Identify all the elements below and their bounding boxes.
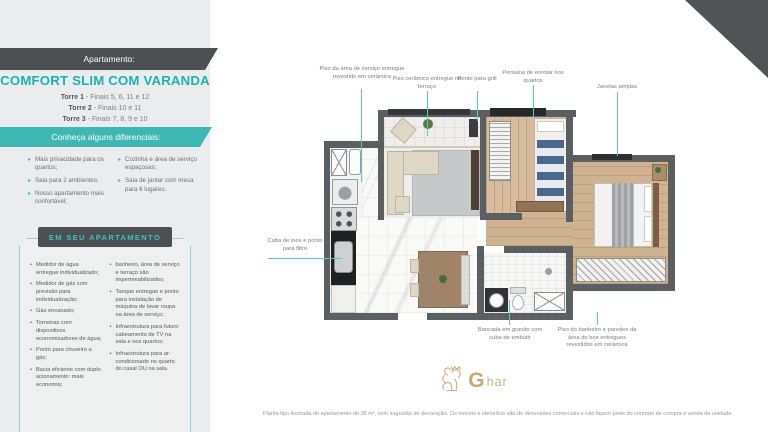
pillow [537,121,564,132]
inox-sink [334,241,353,273]
callout-line [617,92,618,156]
brand-logo: G har [418,362,528,398]
kitchen-counter [331,285,356,313]
callout-blinds: Persiana de enrolar nos quartos [499,70,567,85]
list-item: Sala de jantar com mesa para 6 lugares. [118,177,200,194]
tower-line: Torre 2 - Finais 10 e 11 [0,104,210,115]
toilet [512,295,524,310]
laundry-tank [349,149,361,175]
desk [516,201,564,212]
bed-blanket [537,140,564,204]
wardrobe [576,258,666,282]
callout-line [597,312,598,325]
blinds-window [490,108,546,116]
tv-panel [471,150,479,210]
callout-line [427,91,428,136]
apartment-banner-label: Apartamento: [83,54,134,64]
pillow [644,216,652,242]
stove [331,207,357,231]
armchair [395,196,410,213]
water-heater [331,149,347,176]
wall [324,313,398,320]
wall [504,246,566,253]
shower-head [545,268,552,275]
pillow [644,186,652,212]
list-item: Medidor de água entregue individualizado… [30,262,103,277]
wall [668,155,675,291]
plant [439,275,447,283]
tower-line: Torre 3 - Finais 7, 8, 9 e 10 [0,115,210,126]
wall [566,284,675,291]
wall [480,110,486,220]
wall [480,213,522,220]
dining-bench [461,255,470,305]
grill-point [469,119,478,137]
bedroom-door-opening [566,222,573,246]
list-item: Infraestrutura para futuro cabeamento de… [110,324,183,347]
list-item: Mais privacidade para os quartos; [28,156,110,173]
list-item: banheiro, área de serviço e terraço são … [110,262,183,285]
callout-line [533,85,534,117]
list-item: Nosso apartamento mais confortável; [28,190,110,207]
differentials-banner: Conheça alguns diferenciais: [0,127,212,147]
plant [423,119,433,129]
terrace-railing [388,109,470,115]
list-item: Sala para 2 ambientes; [28,177,110,185]
tower-line: Torre 1 - Finais 5, 6, 11 e 12 [0,93,210,104]
window [592,154,632,160]
dining-chair [410,259,419,273]
wall [477,246,484,320]
tower-list: Torre 1 - Finais 5, 6, 11 e 12 Torre 2 -… [0,93,210,126]
bed-blanket [612,183,634,247]
callout-line [361,89,362,182]
lion-crown-icon [438,362,466,399]
apartment-banner: Apartamento: [0,48,218,70]
logo-text: har [487,376,508,389]
apartment-box-title: EM SEU APARTAMENTO [38,227,172,247]
wardrobe [489,121,511,181]
list-item: Bacia eficiente com duplo acionamento: m… [30,367,103,390]
callout-windows: Janelas amplas [580,84,654,92]
apartment-features-list: Medidor de água entregue individualizado… [30,262,182,394]
wall [566,246,573,320]
wall [324,141,330,320]
callout-grill: Ponto para grill [456,76,498,84]
dining-chair [410,283,419,297]
callout-line [268,258,342,259]
list-item: Medidor de gás com previsão para individ… [30,281,103,304]
sliding-door [384,146,480,148]
logo-letter: G [468,370,484,391]
callout-line [509,300,510,325]
list-item: Infraestrutura para ar-condicionado no q… [110,351,183,374]
list-item: Torneiras com dispositivos economizadore… [30,320,103,343]
page-title: COMFORT SLIM COM VARANDA [0,73,210,88]
differentials-list: Mais privacidade para os quartos; Sala p… [28,156,200,211]
list-item: Gás encanado; [30,308,103,316]
sidebar: Apartamento: COMFORT SLIM COM VARANDA To… [0,0,210,432]
wall [427,313,573,320]
callout-granite-counter: Bancada em granito com cuba de embutir [476,327,544,342]
vanity-basin [489,293,504,308]
wall [324,141,384,148]
list-item: Cozinha e área de serviço espaçosas; [118,156,200,173]
callout-line [477,91,478,121]
washing-machine [332,179,358,205]
wall [378,110,384,220]
list-item: Ponto para chuveiro a gás; [30,347,103,362]
differentials-banner-label: Conheça alguns diferenciais: [51,132,160,142]
wall [566,162,573,222]
list-item: Tanque entregue e ponto para instalação … [110,289,183,320]
corner-triangle-decoration [685,0,768,78]
kitchen-corridor [362,148,378,217]
plant [655,167,661,173]
disclaimer-text: Planta tipo ilustrada do apartamento de … [248,411,748,417]
callout-terrace-floor: Piso cerâmico entregue no terraço [391,76,463,91]
toilet [510,287,526,294]
flyer-page: Apartamento: COMFORT SLIM COM VARANDA To… [0,0,768,432]
callout-bath-floor: Piso do banheiro e paredes da área do bo… [555,327,639,350]
shower-box [534,292,565,311]
callout-inox-sink: Cuba de inox e ponto para filtro [264,238,326,253]
headboard [653,183,659,247]
